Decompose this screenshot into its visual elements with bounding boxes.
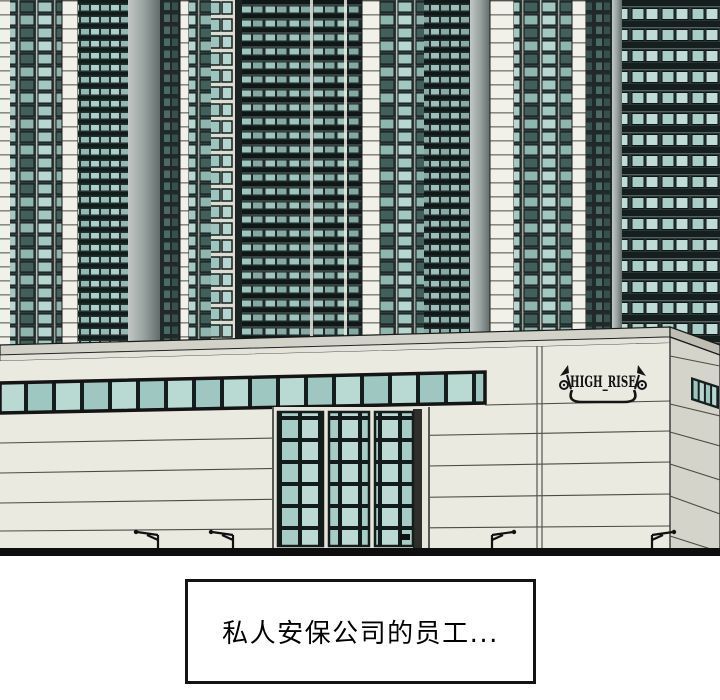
comic-panel: HIGH_RISE xyxy=(0,0,720,700)
sign-text: HIGH_RISE xyxy=(570,372,636,391)
caption-text: 私人安保公司的员工... xyxy=(222,613,499,650)
door-panel xyxy=(329,412,369,546)
ground-line xyxy=(0,548,720,556)
side-wall xyxy=(670,337,720,552)
door-panel xyxy=(278,412,323,546)
skyscraper-towers xyxy=(0,0,720,352)
entrance-doors xyxy=(272,407,430,549)
caption-box: 私人安保公司的员工... xyxy=(185,579,536,684)
tower-corner-pillar xyxy=(128,0,160,352)
door-panel xyxy=(375,412,413,546)
door-handle xyxy=(400,534,410,540)
